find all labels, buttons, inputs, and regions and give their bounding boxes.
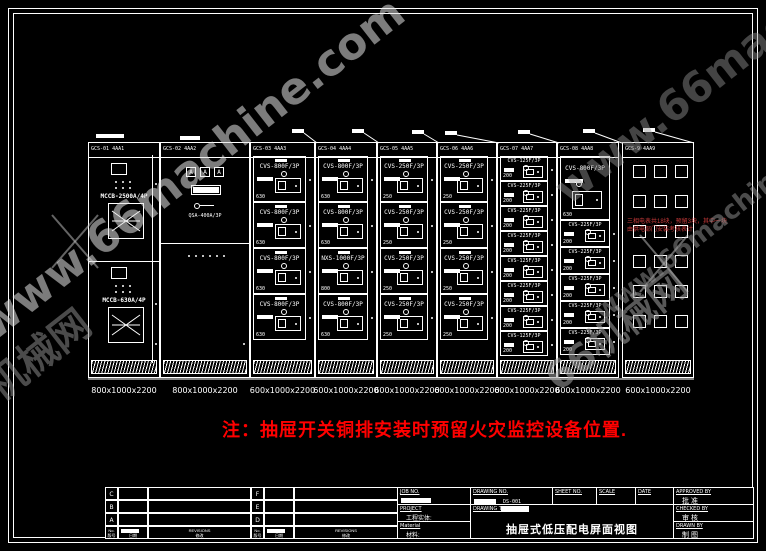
material-label: Material	[398, 522, 470, 529]
revision-desc-cell	[294, 513, 398, 526]
revision-date-cell	[118, 513, 148, 526]
revision-letter-cell: C	[105, 487, 118, 500]
drawing-title-blob	[501, 506, 529, 512]
revision-date-cell	[118, 500, 148, 513]
drawn-cn: 制 图	[674, 529, 753, 539]
switchgear-elevation: GCS-01 4AA1MCCB-2500A/4PMCCB-630A/4P800x…	[0, 0, 766, 551]
footer-cn: 修改	[342, 533, 350, 538]
leader-line	[304, 133, 317, 143]
leader-line	[457, 135, 499, 143]
approved-label: APPROVED BY	[674, 488, 753, 495]
job-no-label: JOB NO.	[398, 488, 470, 495]
material-cn: 材料:	[398, 529, 470, 539]
footer-cn: 修改	[196, 533, 204, 538]
bus-tag-blob	[583, 129, 595, 133]
revision-desc-cell	[294, 487, 398, 500]
revision-footer-cell: REVISIONS修改	[294, 526, 398, 539]
drawn-cell: DRAWN BY 制 图	[673, 521, 754, 539]
project-label: PROJECT	[398, 505, 470, 512]
bus-tag-blob	[292, 129, 304, 133]
revision-desc-cell	[148, 500, 251, 513]
leader-line	[595, 133, 622, 143]
drawing-no-cell: DRAWING NO. DS-001	[470, 487, 553, 505]
sheet-no-cell: SHEET NO.	[552, 487, 597, 505]
meter-annotation: 三相电表共18块，预留3块，其中一块 由供电部门安装考核表计	[627, 218, 766, 234]
meter-annotation-line1: 三相电表共18块，预留3块，其中一块	[627, 218, 766, 226]
scale-cell: SCALE	[596, 487, 636, 505]
footer-cn: 日期	[275, 533, 283, 538]
revision-date-cell	[264, 513, 294, 526]
footer-cn: 版号	[108, 533, 116, 538]
revision-letter-cell: A	[105, 513, 118, 526]
revision-footer-cell: No.版号	[251, 526, 264, 539]
revision-desc-cell	[294, 500, 398, 513]
date-label: DATE	[636, 488, 673, 495]
bus-tag-blob	[412, 130, 424, 134]
title-block-fields: JOB NO. DRAWING NO. DS-001 SHEET NO. SCA…	[397, 487, 754, 539]
checked-label: CHECKED BY	[674, 505, 753, 512]
scale-label: SCALE	[597, 488, 635, 495]
revision-date-cell	[264, 500, 294, 513]
bus-tag-blob	[445, 131, 457, 135]
revision-date-cell	[264, 487, 294, 500]
material-cell: Material 材料:	[397, 521, 471, 539]
footer-blob	[121, 529, 139, 533]
revision-desc-cell	[148, 513, 251, 526]
bus-tag-blob	[96, 134, 124, 138]
job-no-cell: JOB NO.	[397, 487, 471, 505]
footer-cn: 版号	[254, 533, 262, 538]
approved-cell: APPROVED BY 批 准	[673, 487, 754, 505]
revision-letter-cell: B	[105, 500, 118, 513]
bus-tag-blob	[643, 128, 655, 132]
footer-cn: 日期	[129, 533, 137, 538]
sheet-no-label: SHEET NO.	[553, 488, 596, 495]
bus-tag-blob	[518, 130, 530, 134]
checked-cell: CHECKED BY 审 核	[673, 504, 754, 522]
meter-annotation-line2: 由供电部门安装考核表计	[627, 226, 766, 234]
revision-footer-cell: REVISIONS修改	[148, 526, 251, 539]
revision-table: CBANo.版号DATE日期REVISIONS修改FEDNo.版号DATE日期R…	[105, 487, 398, 539]
fire-monitoring-note: 注：抽屉开关铜排安装时预留火灾监控设备位置.	[222, 416, 627, 442]
bus-tag-blob	[180, 136, 200, 140]
leader-line	[655, 132, 694, 143]
bus-tag-blob	[352, 129, 364, 133]
job-no-blob	[401, 498, 431, 503]
project-cell: PROJECT 工程实体:	[397, 504, 471, 522]
cad-drawing-canvas: GCS-01 4AA1MCCB-2500A/4PMCCB-630A/4P800x…	[0, 0, 766, 551]
revision-letter-cell: E	[251, 500, 264, 513]
revision-letter-cell: D	[251, 513, 264, 526]
watermark-cross-icon	[52, 215, 688, 292]
drawing-title-value: 抽屉式低压配电屏面视图	[471, 521, 673, 537]
leader-line	[530, 134, 559, 143]
leader-line	[364, 133, 379, 143]
drawing-no-label: DRAWING NO.	[471, 488, 552, 495]
date-cell: DATE	[635, 487, 674, 505]
leader-line	[424, 134, 439, 143]
revision-footer-cell: No.版号	[105, 526, 118, 539]
drawn-label: DRAWN BY	[674, 522, 753, 529]
revision-desc-cell	[148, 487, 251, 500]
footer-blob	[267, 529, 285, 533]
revision-date-cell	[118, 487, 148, 500]
leader-lines-layer	[0, 0, 766, 551]
revision-letter-cell: F	[251, 487, 264, 500]
drawing-title-cell: DRAWING TITLE 抽屉式低压配电屏面视图	[470, 504, 674, 539]
